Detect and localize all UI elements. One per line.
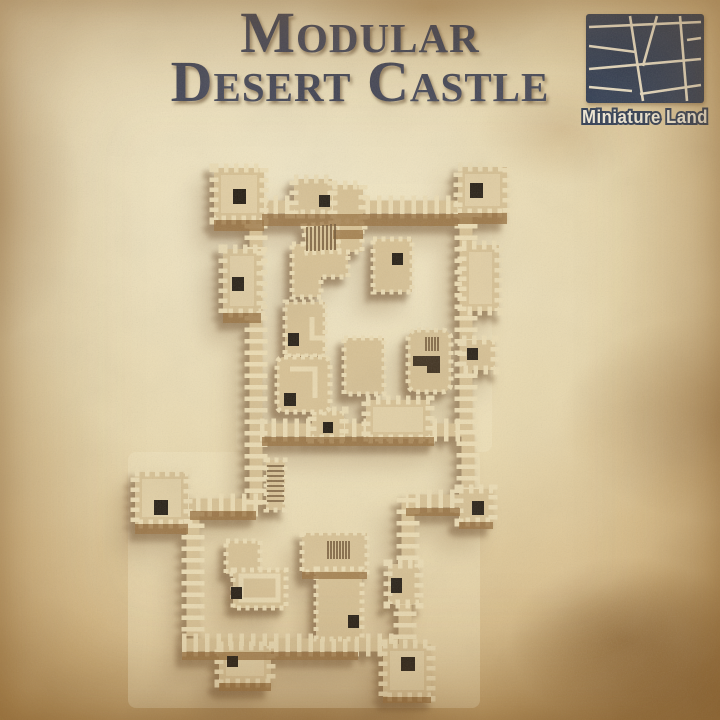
tower-window [470, 183, 483, 198]
brand-logo: Miniature Land [586, 14, 706, 130]
tower-window [467, 348, 478, 360]
building-hatch [288, 333, 299, 346]
tower-window [391, 578, 402, 593]
building-keep [344, 338, 384, 394]
tower-window [232, 277, 244, 291]
building-hatch [348, 615, 359, 628]
tower-window [472, 501, 484, 515]
tower-window [233, 189, 246, 204]
tower-window [319, 195, 330, 207]
tower-window [154, 500, 168, 515]
brand-wordmark: Miniature Land [578, 104, 712, 130]
tower-window [227, 656, 238, 667]
logo-lines-icon [586, 14, 704, 103]
building-lower-d [316, 569, 362, 639]
tower-window [323, 422, 333, 433]
brand-name: Miniature Land [582, 107, 708, 127]
building-hatch [284, 393, 296, 406]
building-hatch [231, 587, 242, 599]
wall-staircase [266, 460, 285, 510]
building-store [285, 302, 325, 356]
building-hatch [392, 253, 403, 265]
product-poster: Modular Desert Castle Miniature La [0, 0, 720, 720]
logo-mark [586, 14, 704, 103]
tower-window [401, 657, 415, 671]
building-barracks [373, 239, 412, 292]
